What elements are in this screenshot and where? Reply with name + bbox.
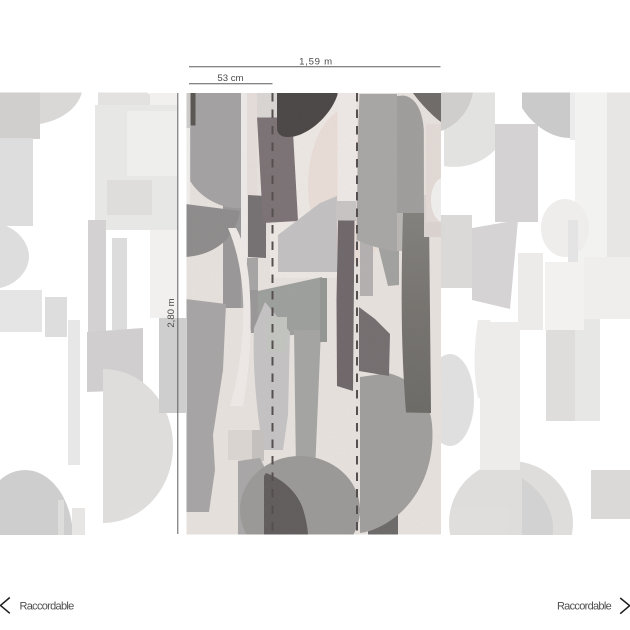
svg-text:1,59 m: 1,59 m: [299, 57, 333, 68]
svg-text:53 cm: 53 cm: [217, 73, 243, 84]
svg-text:Raccordable: Raccordable: [557, 601, 612, 613]
svg-text:Raccordable: Raccordable: [20, 601, 75, 613]
svg-text:2,80 m: 2,80 m: [166, 298, 177, 327]
